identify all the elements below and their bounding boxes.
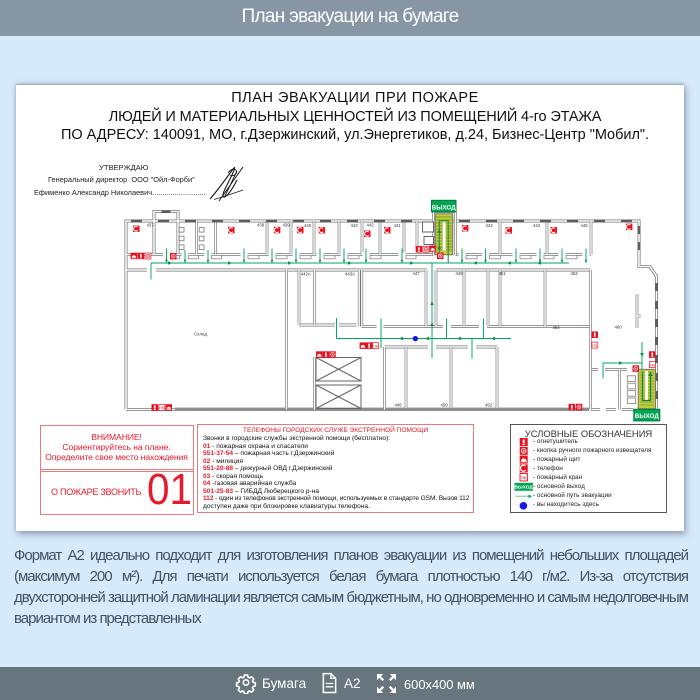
svg-text:451: 451 [499,271,507,276]
svg-text:449: 449 [456,271,464,276]
svg-text:444: 444 [533,223,541,228]
svg-text:447: 447 [413,271,421,276]
svg-text:438: 438 [257,223,265,228]
svg-text:443: 443 [486,223,494,228]
svg-text:443: 443 [351,223,359,228]
svg-text:445: 445 [581,223,589,228]
svg-text:453: 453 [571,271,579,276]
svg-text:ВЫХОД: ВЫХОД [432,205,457,212]
svg-text:ВЫХОД: ВЫХОД [635,413,660,420]
svg-text:442: 442 [367,223,375,228]
svg-text:439: 439 [283,223,291,228]
svg-text:443А: 443А [345,272,355,277]
svg-text:452: 452 [485,403,493,408]
svg-text:437: 437 [147,223,155,228]
svg-text:442А: 442А [301,272,311,277]
svg-text:440: 440 [304,223,312,228]
svg-text:441: 441 [394,223,402,228]
svg-text:460: 460 [615,325,623,330]
svg-text:Склад: Склад [194,332,208,337]
svg-text:ВЫХОД: ВЫХОД [515,484,534,490]
svg-text:ПК: ПК [521,475,527,480]
svg-text:450: 450 [441,403,449,408]
svg-text:448: 448 [395,403,403,408]
svg-text:454: 454 [553,325,561,330]
